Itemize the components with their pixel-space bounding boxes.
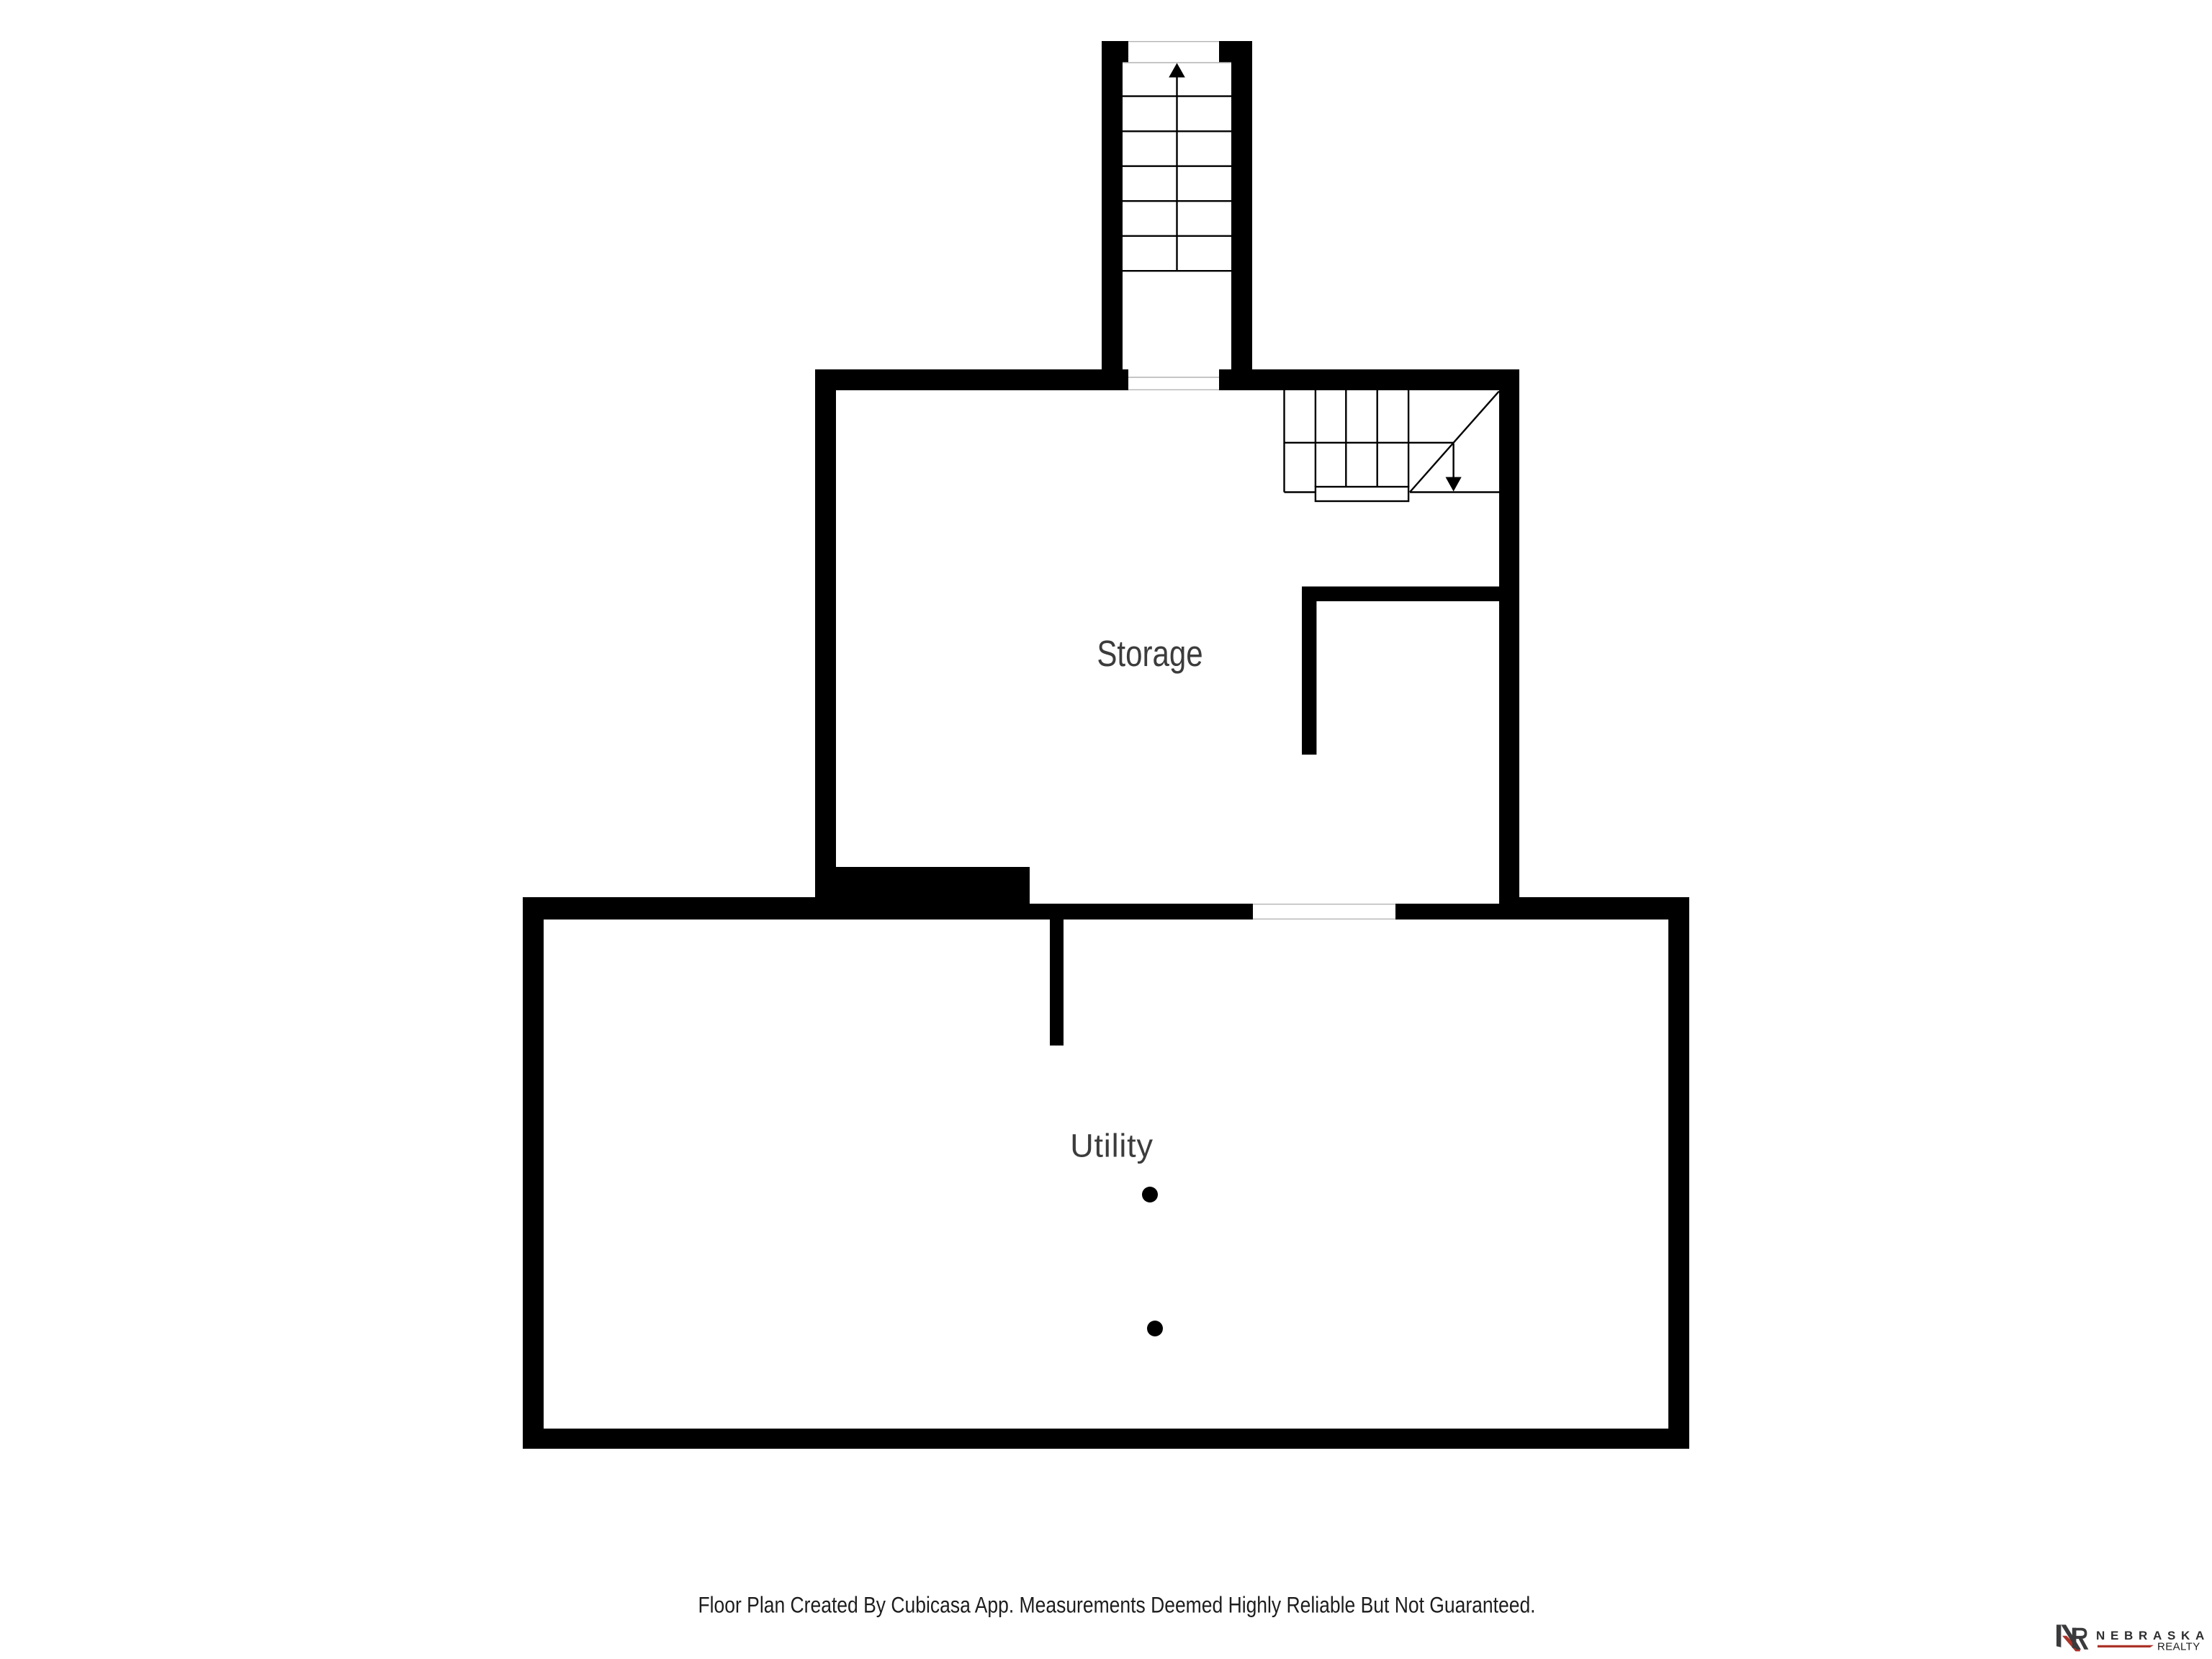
svg-text:Floor Plan Created By Cubicasa: Floor Plan Created By Cubicasa App. Meas… [698,1593,1535,1619]
svg-text:Storage: Storage [1097,633,1202,674]
svg-text:REALTY: REALTY [2157,1640,2200,1653]
svg-text:Utility: Utility [1070,1128,1154,1164]
